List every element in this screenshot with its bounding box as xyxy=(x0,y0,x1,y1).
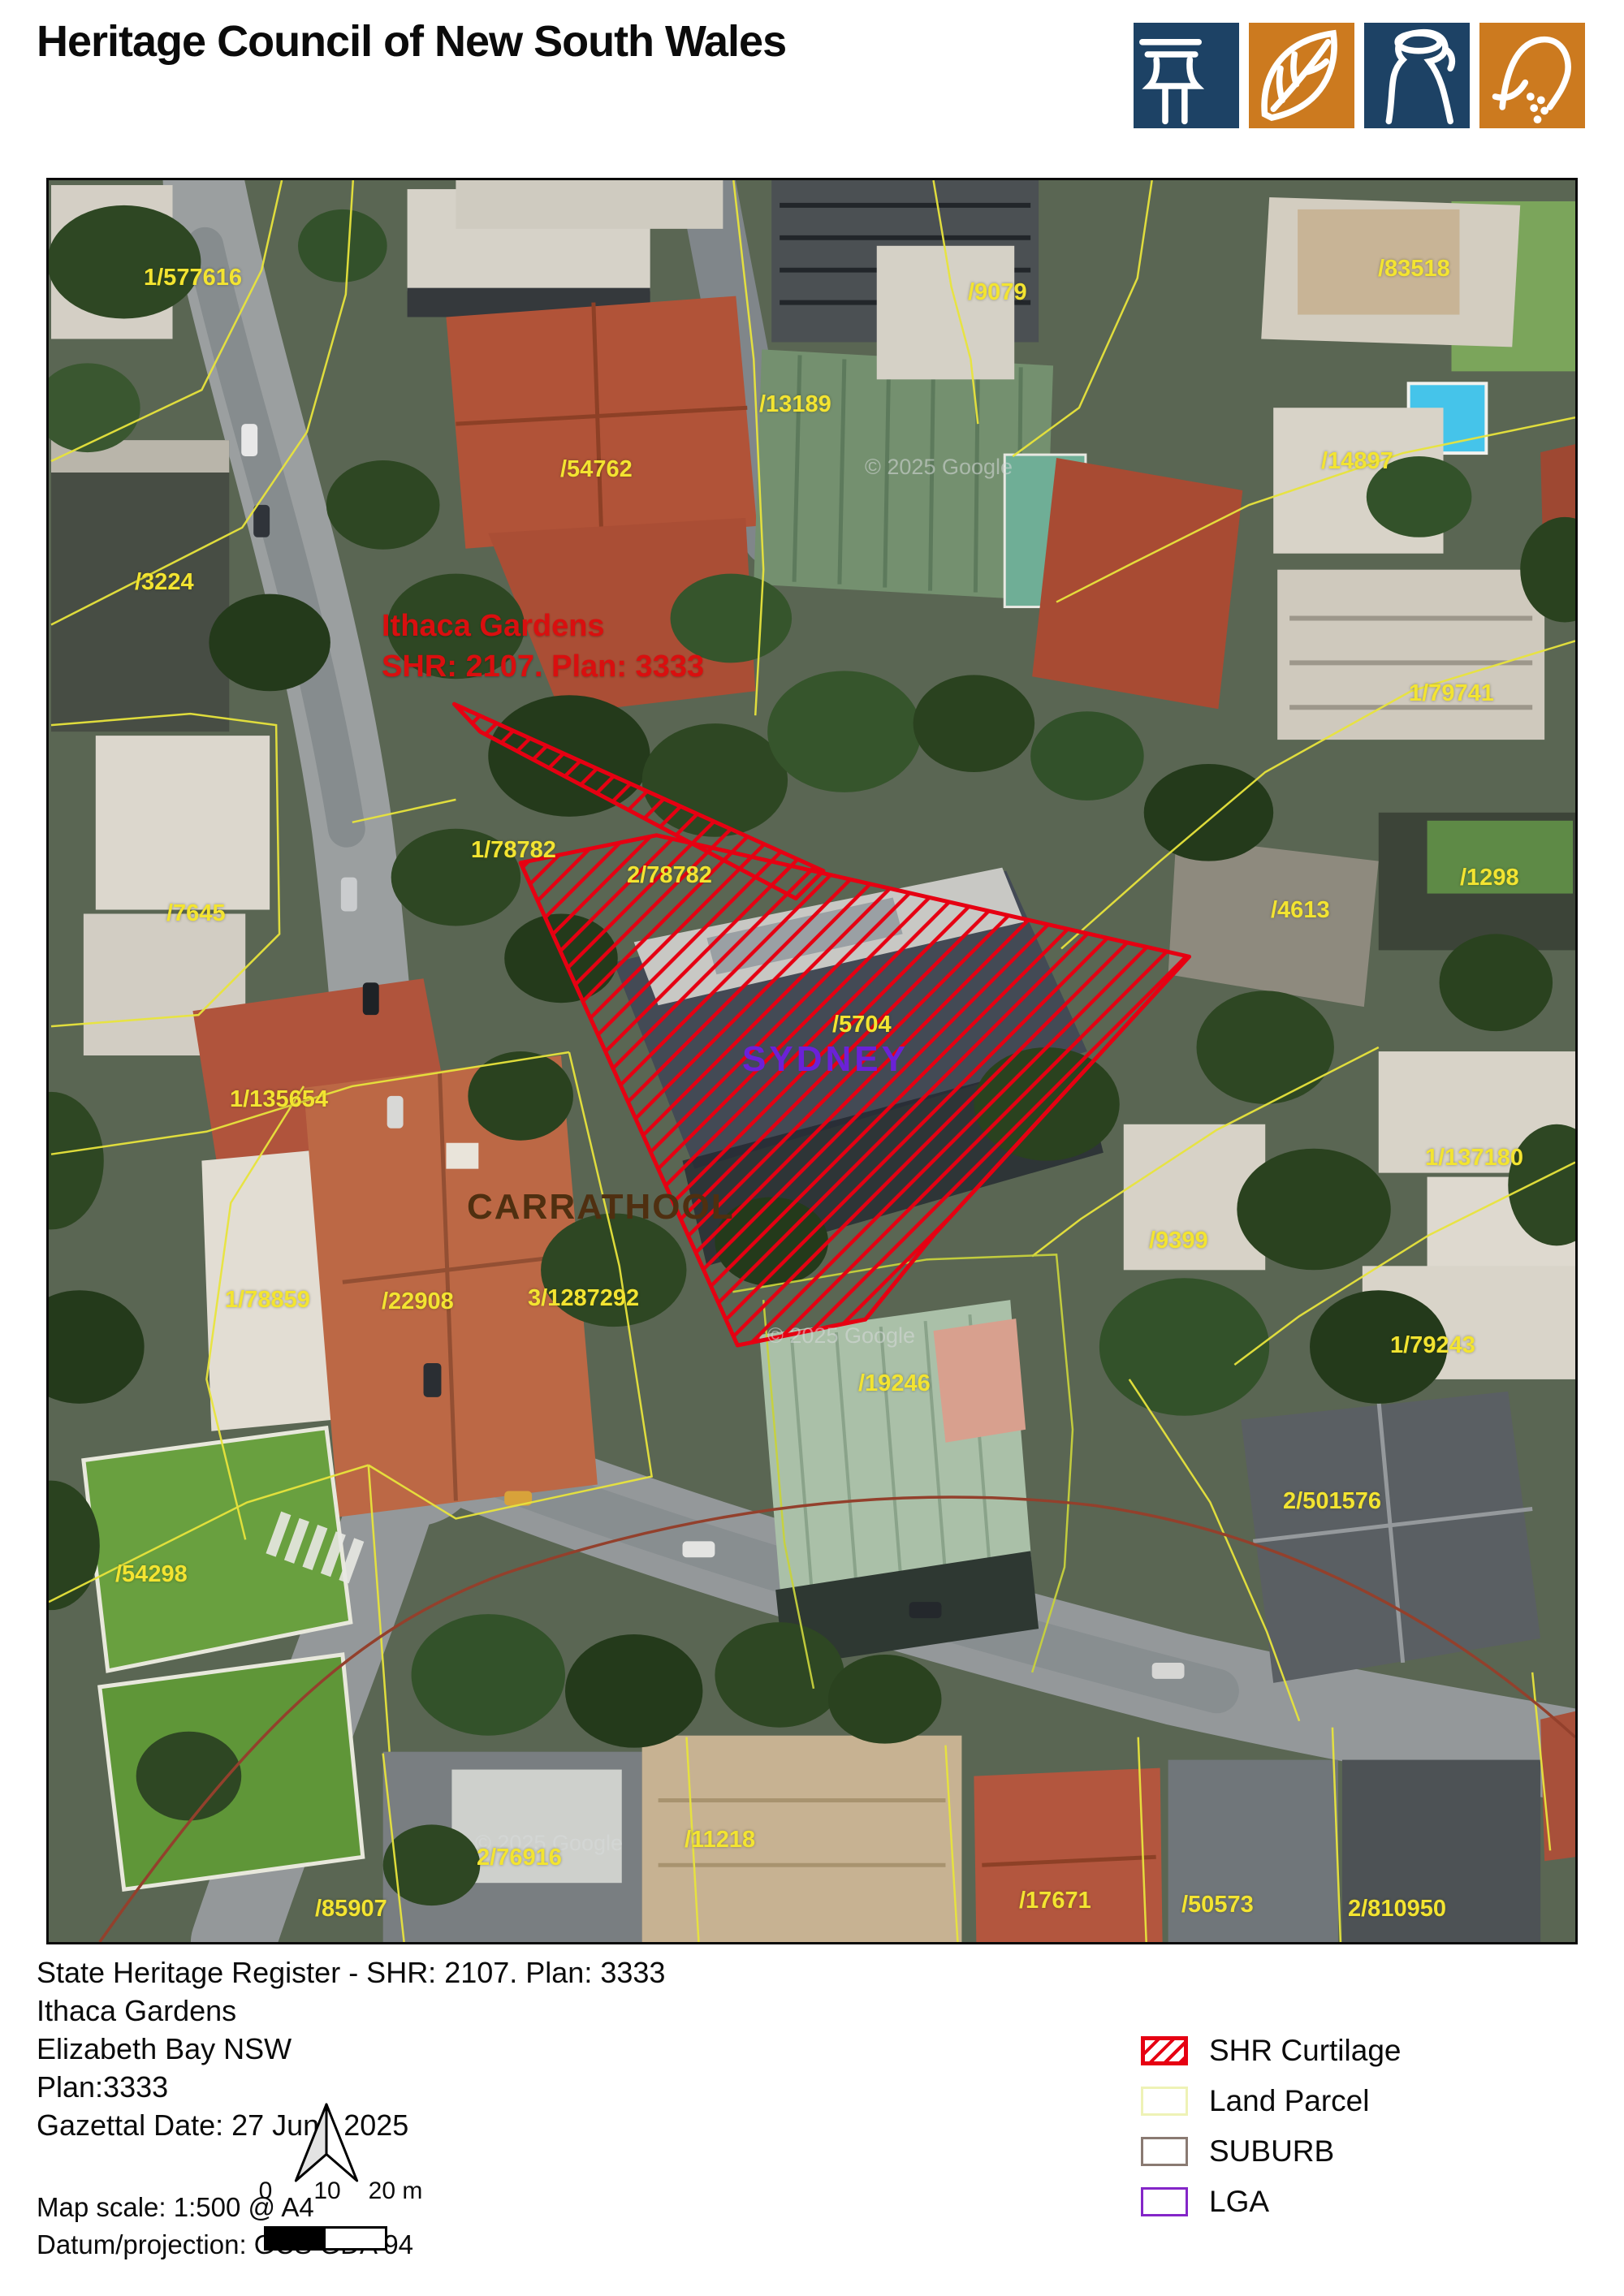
heritage-map-document: Heritage Council of New South Wales xyxy=(0,0,1624,2296)
parcel-label: 2/810950 xyxy=(1348,1896,1446,1922)
legend-swatch xyxy=(1141,2087,1188,2116)
shr-details-line: Ithaca Gardens xyxy=(37,1992,665,2030)
parcel-label: 1/79741 xyxy=(1409,680,1494,706)
parcel-label: 2/501576 xyxy=(1283,1488,1381,1514)
parcel-label: 1/79243 xyxy=(1390,1332,1475,1358)
parcel-label: /85907 xyxy=(315,1896,387,1922)
scalebar-tick: 20 m xyxy=(363,2177,428,2205)
parcel-label: /54298 xyxy=(115,1561,188,1587)
legend-item: SHR Curtilage xyxy=(1141,2035,1401,2067)
legend-label: Land Parcel xyxy=(1209,2084,1369,2118)
legend-swatch xyxy=(1141,2137,1188,2166)
parcel-label: 1/78859 xyxy=(225,1287,310,1313)
legend-label: SHR Curtilage xyxy=(1209,2034,1401,2068)
page-title: Heritage Council of New South Wales xyxy=(37,16,786,67)
legend-swatch xyxy=(1141,2036,1188,2065)
leaf-icon xyxy=(1249,23,1354,128)
scalebar-tick: 10 xyxy=(311,2177,343,2205)
scalebar-tick: 0 xyxy=(254,2177,277,2205)
rock-art-icon xyxy=(1479,23,1585,128)
parcel-label: /54762 xyxy=(560,456,633,482)
jug-icon xyxy=(1364,23,1470,128)
legend: SHR CurtilageLand ParcelSUBURBLGA xyxy=(1141,2035,1401,2236)
parcel-label: 2/76916 xyxy=(477,1845,562,1871)
parcel-label: 1/135654 xyxy=(230,1086,328,1112)
parcel-label: /1298 xyxy=(1460,865,1519,891)
parcel-label-layer: 1/577616/13189/54762/9079/83518/14897/32… xyxy=(49,180,1575,1942)
parcel-label: /14897 xyxy=(1321,448,1393,474)
parcel-label: 3/1287292 xyxy=(528,1285,639,1311)
shr-details-line: State Heritage Register - SHR: 2107. Pla… xyxy=(37,1953,665,1992)
parcel-label: 1/78782 xyxy=(471,837,556,863)
parcel-label: /9399 xyxy=(1149,1228,1208,1254)
heritage-council-logo xyxy=(1134,23,1585,128)
column-icon xyxy=(1134,23,1239,128)
legend-item: SUBURB xyxy=(1141,2135,1401,2168)
legend-label: SUBURB xyxy=(1209,2134,1334,2169)
parcel-label: /7645 xyxy=(166,900,226,926)
parcel-label: 2/78782 xyxy=(627,862,712,888)
parcel-label: 1/137180 xyxy=(1425,1145,1523,1171)
shr-details-line: Plan:3333 xyxy=(37,2068,665,2106)
parcel-label: /83518 xyxy=(1378,256,1450,282)
parcel-label: /9079 xyxy=(968,279,1027,305)
north-arrow-icon xyxy=(288,2101,365,2186)
legend-swatch xyxy=(1141,2187,1188,2216)
legend-item: Land Parcel xyxy=(1141,2085,1401,2117)
scale-bar xyxy=(264,2226,387,2251)
map-frame[interactable]: Ithaca Gardens SHR: 2107. Plan: 3333 SYD… xyxy=(46,178,1578,1944)
parcel-label: /3224 xyxy=(135,569,194,595)
parcel-label: /5704 xyxy=(832,1012,892,1038)
legend-item: LGA xyxy=(1141,2186,1401,2218)
parcel-label: /22908 xyxy=(382,1288,454,1314)
parcel-label: /17671 xyxy=(1019,1888,1091,1914)
legend-label: LGA xyxy=(1209,2185,1269,2219)
map-label-layer: Ithaca Gardens SHR: 2107. Plan: 3333 SYD… xyxy=(49,180,1575,1942)
parcel-label: /13189 xyxy=(759,391,831,417)
parcel-label: /11218 xyxy=(685,1827,755,1853)
parcel-label: /19246 xyxy=(858,1370,931,1396)
parcel-label: /50573 xyxy=(1181,1892,1254,1918)
parcel-label: /4613 xyxy=(1271,897,1330,923)
parcel-label: 1/577616 xyxy=(144,265,242,291)
shr-details-line: Elizabeth Bay NSW xyxy=(37,2030,665,2068)
